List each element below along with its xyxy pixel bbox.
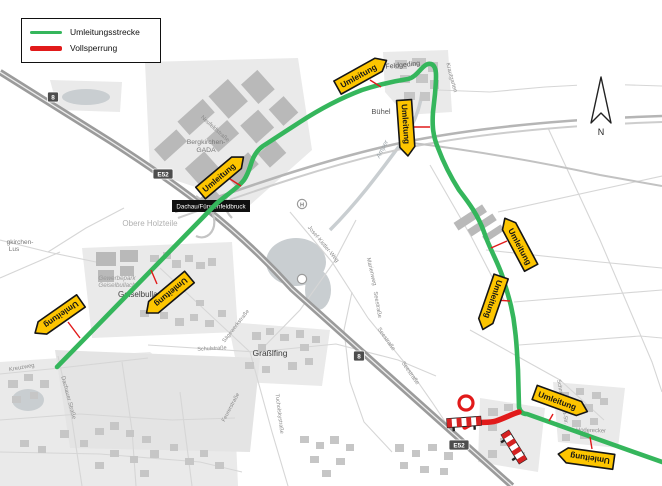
map-label: Seestraße [376,327,396,352]
legend-item-detour: Umleitungsstrecke [30,24,152,40]
road-shield-label: 8 [51,95,55,102]
poi-icon [297,274,306,283]
compass: N [577,73,625,147]
legend-item-closure: Vollsperrung [30,40,152,56]
road-shield-label: 8 [357,354,361,361]
bus-stop-icon: H [297,199,306,208]
road-shield-label: E52 [157,172,169,179]
map-label: Marienweg [365,257,377,286]
road-shield-label: E52 [453,443,465,450]
road-shield: E52 [449,440,469,450]
map-label: Bergkirchen- [187,139,226,146]
map-label: Seestraße [372,291,383,318]
legend-label-detour: Umleitungsstrecke [70,27,140,37]
sign-leader-line [68,322,80,338]
umleitung-sign: Umleitung [397,100,416,157]
umleitung-sign: Umleitung [476,274,508,332]
umleitung-sign: Umleitung [557,447,615,470]
map-label: Bühel [371,107,391,116]
map-label: Schulstraße [197,345,227,353]
map-label: Geiselbullach [98,282,136,289]
map-label: Obere Holzteile [122,219,178,228]
road-shield: 8 [48,92,59,102]
north-arrow-icon [578,73,624,131]
poi-letter: H [300,202,304,208]
sign-leader-line [549,414,553,421]
road-shield: E52 [153,169,173,179]
map-label: Graßlfing [253,348,288,358]
legend-label-closure: Vollsperrung [70,43,117,53]
compass-n-label: N [598,127,605,137]
closure-line-swatch [30,46,62,51]
road-shield: 8 [354,351,365,361]
map-label: Gewerbepark [98,275,136,282]
map-label: GADA [196,147,216,154]
detour-line-swatch [30,31,62,34]
map-label: Tucholskystraße [274,394,285,435]
detour-map: FeldgedingBühelBergkirchen-GADAObere Hol… [0,0,662,486]
map-label: Lus [9,246,20,253]
map-label: gkirchen- [7,239,34,246]
map-viewport: FeldgedingBühelBergkirchen-GADAObere Hol… [0,0,662,486]
legend: Umleitungsstrecke Vollsperrung [21,18,161,63]
umleitung-sign: Umleitung [31,295,85,339]
closure-circle-icon [459,396,473,410]
sign-leader-line [491,241,507,248]
